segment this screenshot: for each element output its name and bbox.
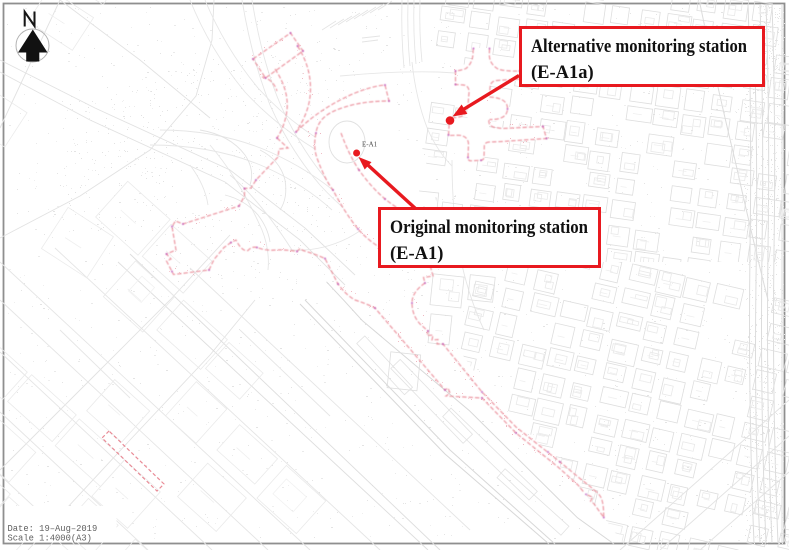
svg-text:(E-A1a): (E-A1a) xyxy=(531,63,594,83)
svg-text:E-A1: E-A1 xyxy=(362,141,378,149)
svg-text:Scale 1:4000(A3): Scale 1:4000(A3) xyxy=(8,534,92,544)
svg-text:Date: 19–Aug–2019: Date: 19–Aug–2019 xyxy=(8,524,98,534)
svg-text:Alternative monitoring station: Alternative monitoring station xyxy=(531,37,748,57)
svg-text:Original monitoring station: Original monitoring station xyxy=(390,218,589,238)
svg-text:(E-A1): (E-A1) xyxy=(390,244,443,264)
